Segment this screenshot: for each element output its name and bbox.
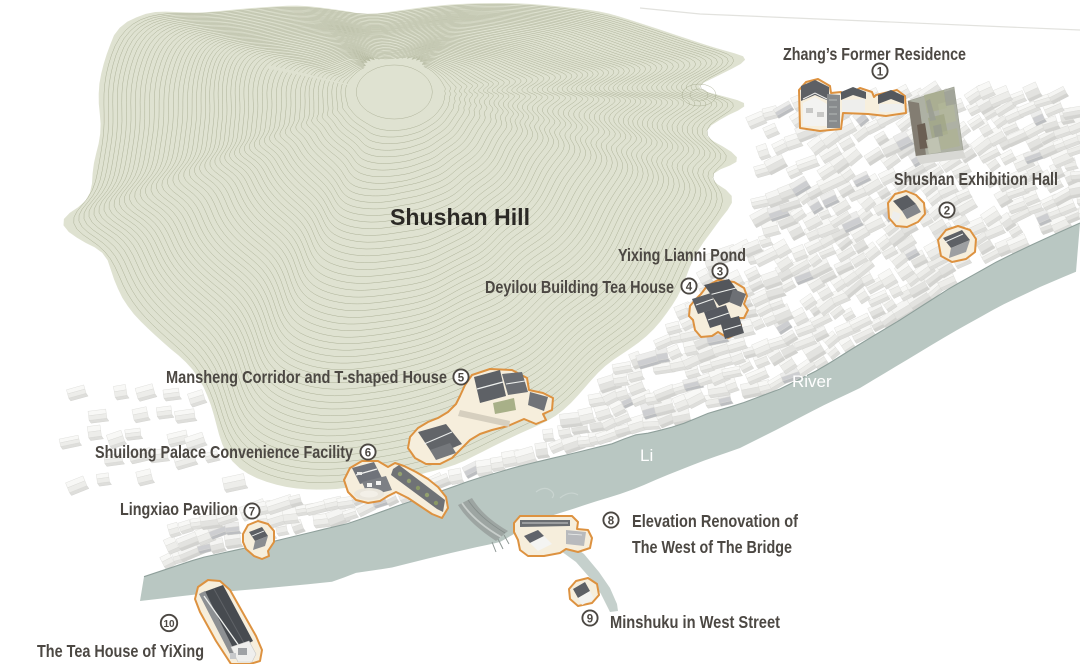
- svg-text:7: 7: [249, 507, 255, 519]
- svg-text:6: 6: [365, 448, 371, 460]
- svg-text:Shushan Exhibition Hall: Shushan Exhibition Hall: [894, 169, 1058, 189]
- svg-text:Li: Li: [640, 446, 653, 465]
- svg-text:10: 10: [163, 619, 175, 630]
- svg-text:5: 5: [458, 373, 465, 385]
- svg-text:Yixing Lianni Pond: Yixing Lianni Pond: [618, 245, 746, 265]
- svg-text:4: 4: [686, 282, 693, 294]
- svg-text:Shushan Hill: Shushan Hill: [390, 204, 530, 230]
- svg-text:2: 2: [944, 206, 950, 218]
- svg-text:Minshuku in West Street: Minshuku in West Street: [610, 612, 780, 632]
- svg-text:Lingxiao Pavilion: Lingxiao Pavilion: [120, 499, 238, 519]
- svg-text:Zhang’s Former Residence: Zhang’s Former Residence: [783, 44, 966, 64]
- svg-text:Mansheng Corridor and T-shaped: Mansheng Corridor and T-shaped House: [166, 367, 447, 387]
- svg-text:8: 8: [608, 516, 615, 528]
- svg-text:9: 9: [587, 614, 593, 626]
- svg-text:The West of The Bridge: The West of The Bridge: [632, 537, 792, 557]
- svg-text:The Tea House of YiXing: The Tea House of YiXing: [37, 641, 204, 661]
- svg-text:3: 3: [717, 267, 723, 279]
- svg-text:Deyilou Building Tea House: Deyilou Building Tea House: [485, 277, 674, 297]
- svg-text:1: 1: [877, 67, 884, 79]
- svg-text:Shuilong Palace Convenience Fa: Shuilong Palace Convenience Facility: [95, 442, 353, 462]
- svg-text:Elevation Renovation of: Elevation Renovation of: [632, 511, 798, 531]
- svg-text:River: River: [792, 372, 832, 391]
